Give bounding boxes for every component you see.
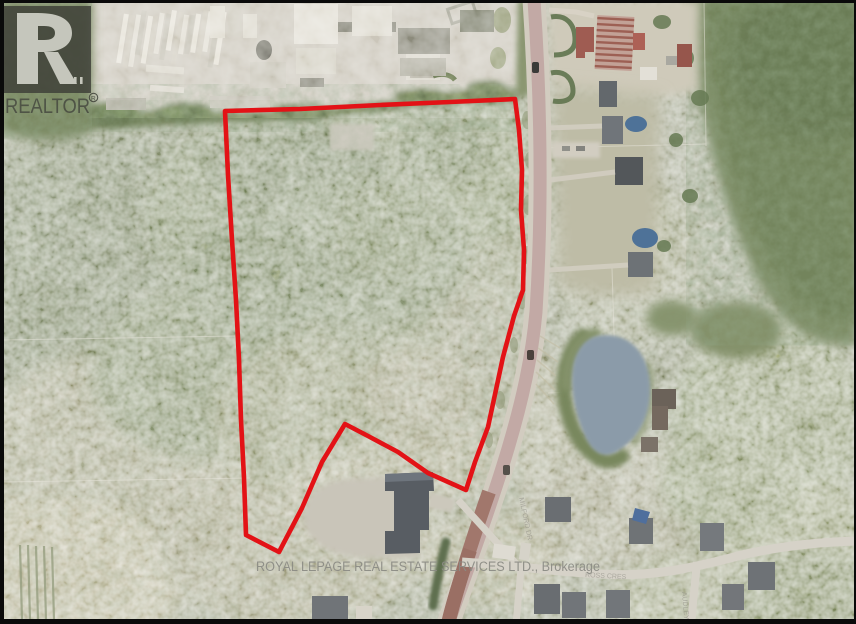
svg-text:R: R <box>91 96 96 103</box>
svg-text:ROYAL LEPAGE REAL ESTATE SERVI: ROYAL LEPAGE REAL ESTATE SERVICES LTD., … <box>256 559 600 574</box>
svg-text:REALTOR: REALTOR <box>5 95 90 118</box>
